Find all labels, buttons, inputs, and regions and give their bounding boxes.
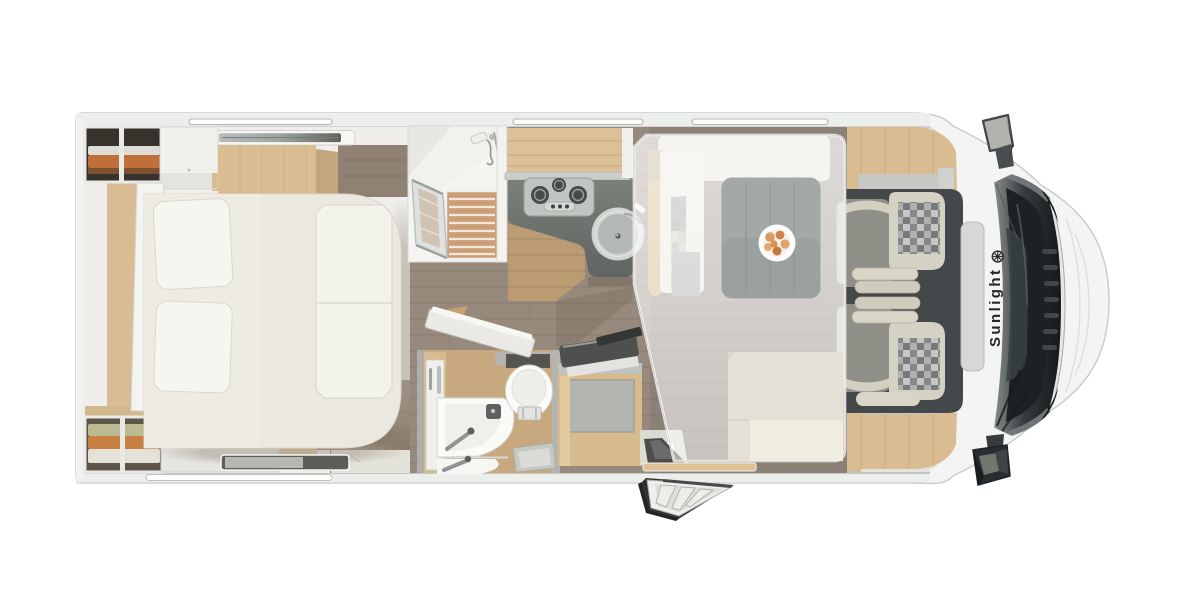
svg-text:Sunlight: Sunlight bbox=[987, 269, 1004, 347]
